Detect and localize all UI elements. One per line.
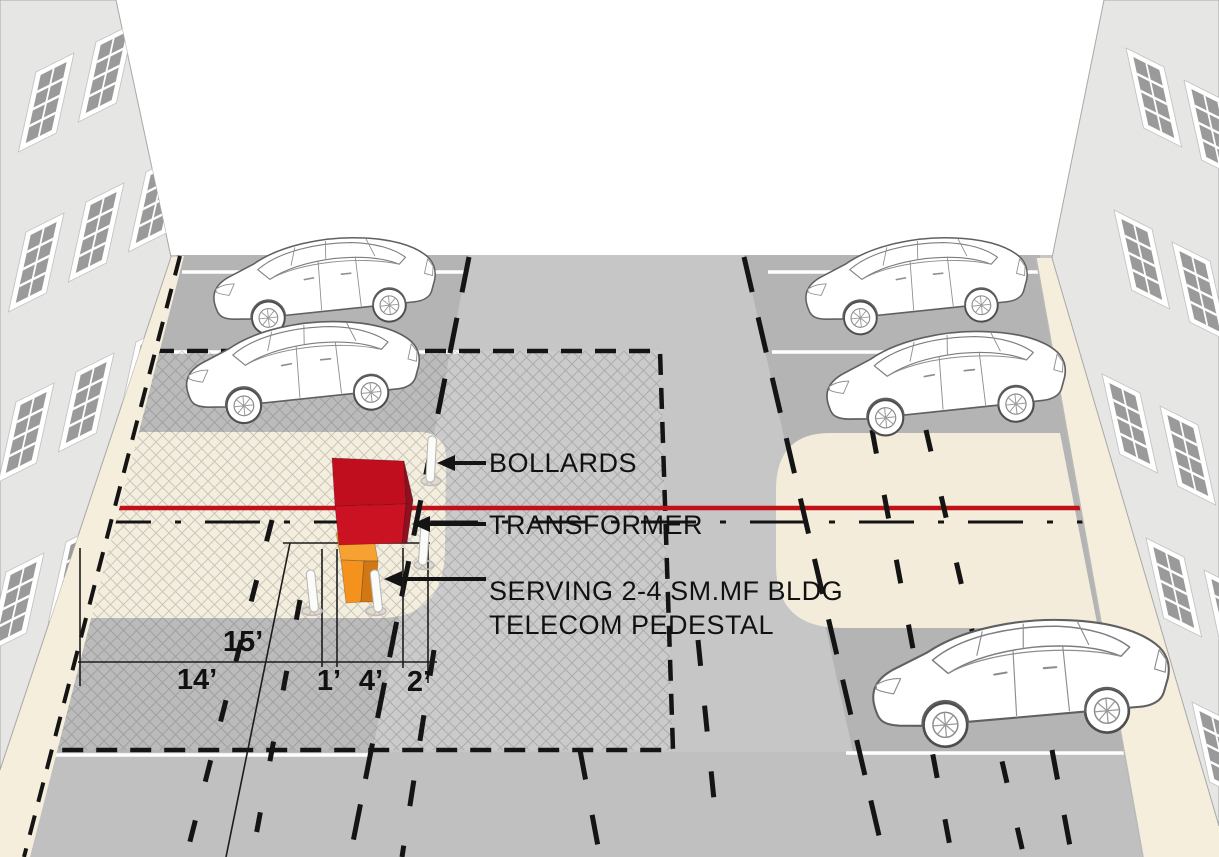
dimension-1ft: 1’: [317, 665, 341, 697]
dimension-14ft: 14’: [177, 664, 217, 696]
diagram-canvas: BOLLARDS TRANSFORMER SERVING 2-4 SM.MF B…: [0, 0, 1219, 857]
sky-background: [0, 0, 1219, 255]
transformer-label: TRANSFORMER: [489, 510, 703, 540]
transformer-cube: [332, 458, 413, 545]
dimension-4ft: 4’: [359, 665, 383, 697]
pedestal-label-line1: SERVING 2-4 SM.MF BLDG: [489, 576, 843, 606]
streetscape-diagram: BOLLARDS TRANSFORMER SERVING 2-4 SM.MF B…: [0, 0, 1219, 857]
dimension-2ft: 2’: [407, 666, 431, 698]
dimension-15ft: 15’: [223, 626, 263, 658]
pedestal-label-line2: TELECOM PEDESTAL: [489, 610, 774, 640]
bollards-label: BOLLARDS: [489, 448, 637, 478]
near-street-band: [0, 752, 1219, 857]
